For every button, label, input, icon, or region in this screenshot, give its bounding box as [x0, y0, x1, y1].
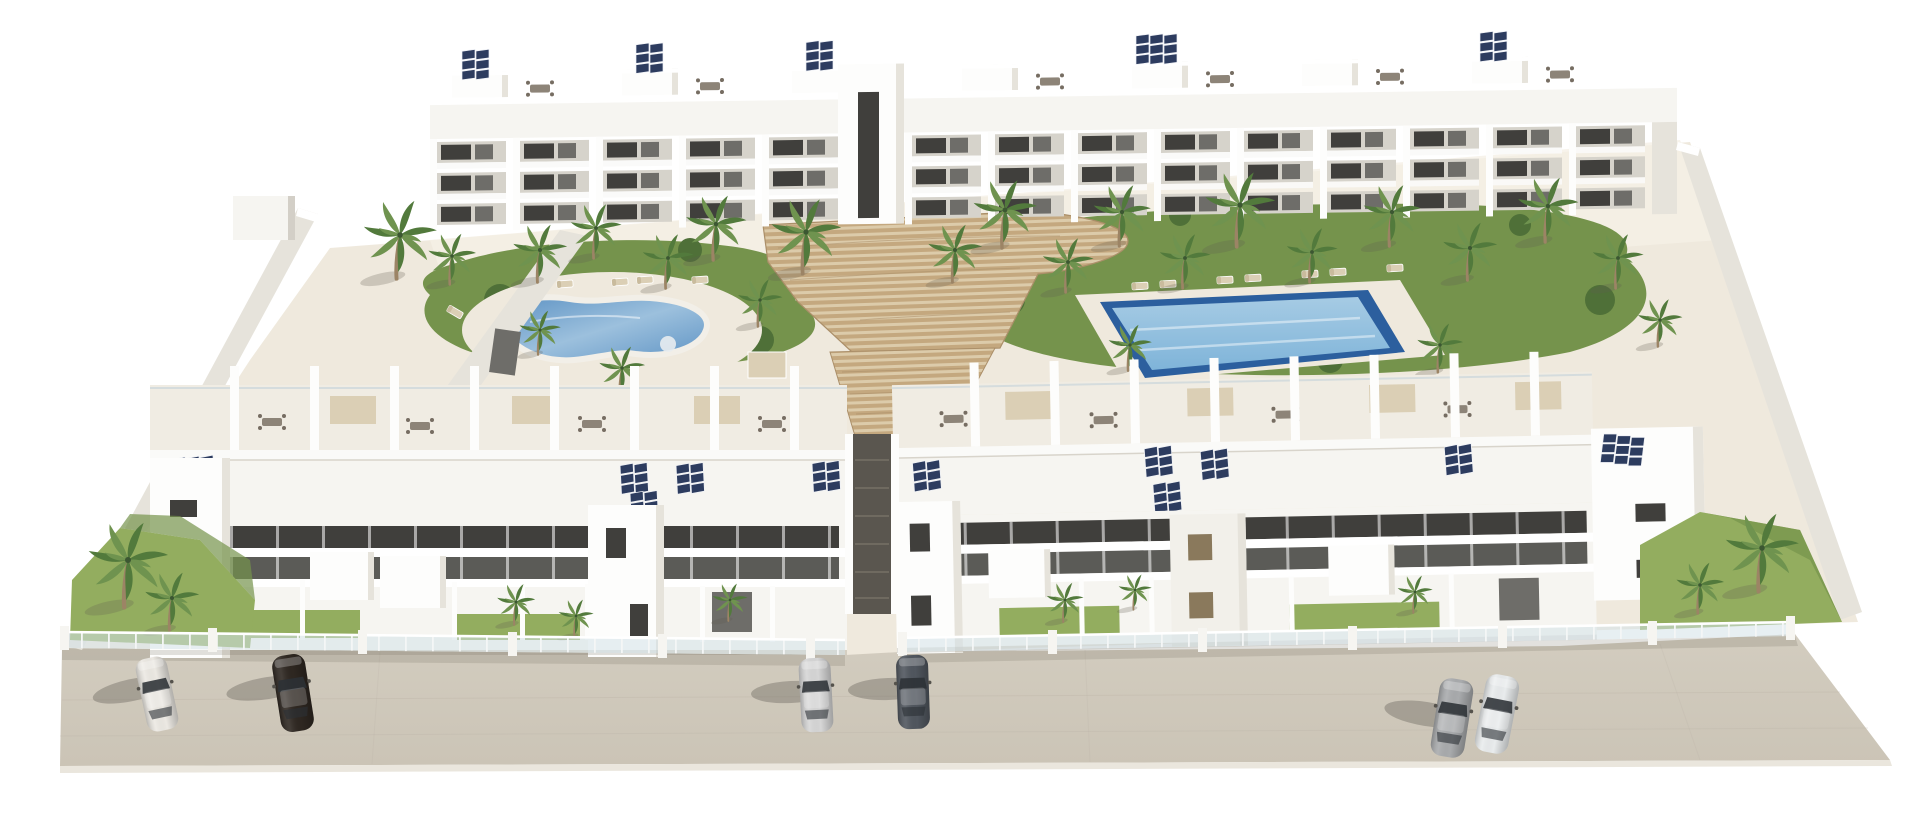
rear-penthouse-box — [1132, 62, 1188, 89]
tower-glazing — [858, 92, 879, 218]
front-right-alley-tower — [894, 501, 963, 654]
rear-roof-dining-set — [696, 78, 724, 94]
front-right-block — [892, 349, 1707, 654]
rear-solar-array — [1480, 31, 1507, 62]
solar-array — [1600, 432, 1644, 467]
roof-plane — [150, 460, 847, 518]
rear-penthouse-box — [962, 64, 1018, 91]
garden-store-box — [1328, 544, 1395, 595]
terrace-floor — [150, 385, 847, 450]
rear-penthouse-box — [1302, 59, 1358, 86]
rear-solar-array — [806, 41, 833, 72]
car-graphite-center — [893, 654, 933, 729]
front-left-entry-tower — [588, 505, 664, 657]
rear-roof-dining-set — [1546, 66, 1574, 82]
shuttered-window — [1189, 592, 1213, 618]
shuttered-window — [1188, 534, 1212, 560]
central-alley — [845, 434, 899, 614]
rear-central-tower — [838, 64, 904, 225]
front-left-block — [150, 366, 847, 658]
garden-store-box — [380, 556, 446, 608]
rear-roof-dining-set — [526, 80, 554, 96]
rear-roof-dining-set — [1036, 73, 1064, 89]
parapet — [150, 450, 847, 460]
rear-roof-dining-set — [1206, 71, 1234, 87]
front-left-facade — [150, 518, 847, 650]
rear-roof-dining-set — [1376, 69, 1404, 85]
ground-glazing — [1499, 578, 1540, 621]
apartment-complex-render — [0, 0, 1920, 837]
corner-utility-box — [233, 196, 295, 240]
render-canvas — [0, 0, 1920, 837]
patio-lawn — [1289, 602, 1439, 631]
rear-solar-array — [636, 43, 663, 74]
front-right-shutter-tower — [1169, 513, 1248, 646]
rear-solar-array — [1136, 34, 1177, 65]
rear-facade — [430, 122, 1677, 231]
rear-apartment-block — [430, 27, 1677, 231]
terrace-floor — [892, 372, 1593, 448]
garden-store-box — [988, 549, 1051, 598]
garden-store-box — [310, 552, 374, 600]
pool-step — [660, 336, 676, 352]
car-silver-center — [795, 657, 836, 733]
